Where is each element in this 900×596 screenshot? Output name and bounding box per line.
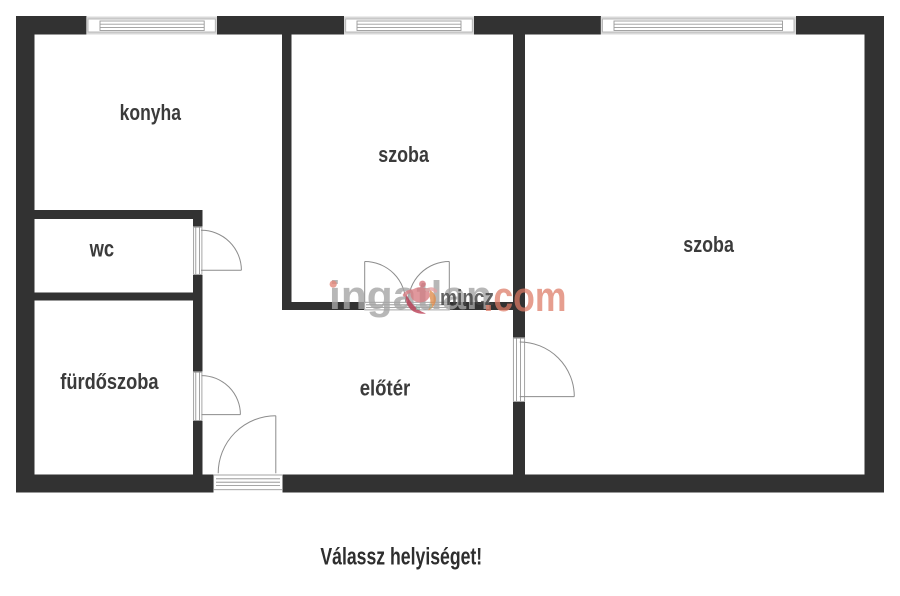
svg-text:szoba: szoba bbox=[683, 232, 734, 257]
svg-text:wc: wc bbox=[89, 235, 114, 261]
svg-text:fürdőszoba: fürdőszoba bbox=[60, 369, 159, 394]
svg-text:.com: .com bbox=[484, 273, 567, 320]
svg-text:előtér: előtér bbox=[360, 376, 411, 401]
svg-text:konyha: konyha bbox=[120, 100, 182, 125]
svg-text:szoba: szoba bbox=[378, 142, 429, 167]
svg-text:mincz: mincz bbox=[440, 285, 494, 310]
svg-text:Válassz helyiséget!: Válassz helyiséget! bbox=[320, 544, 482, 571]
